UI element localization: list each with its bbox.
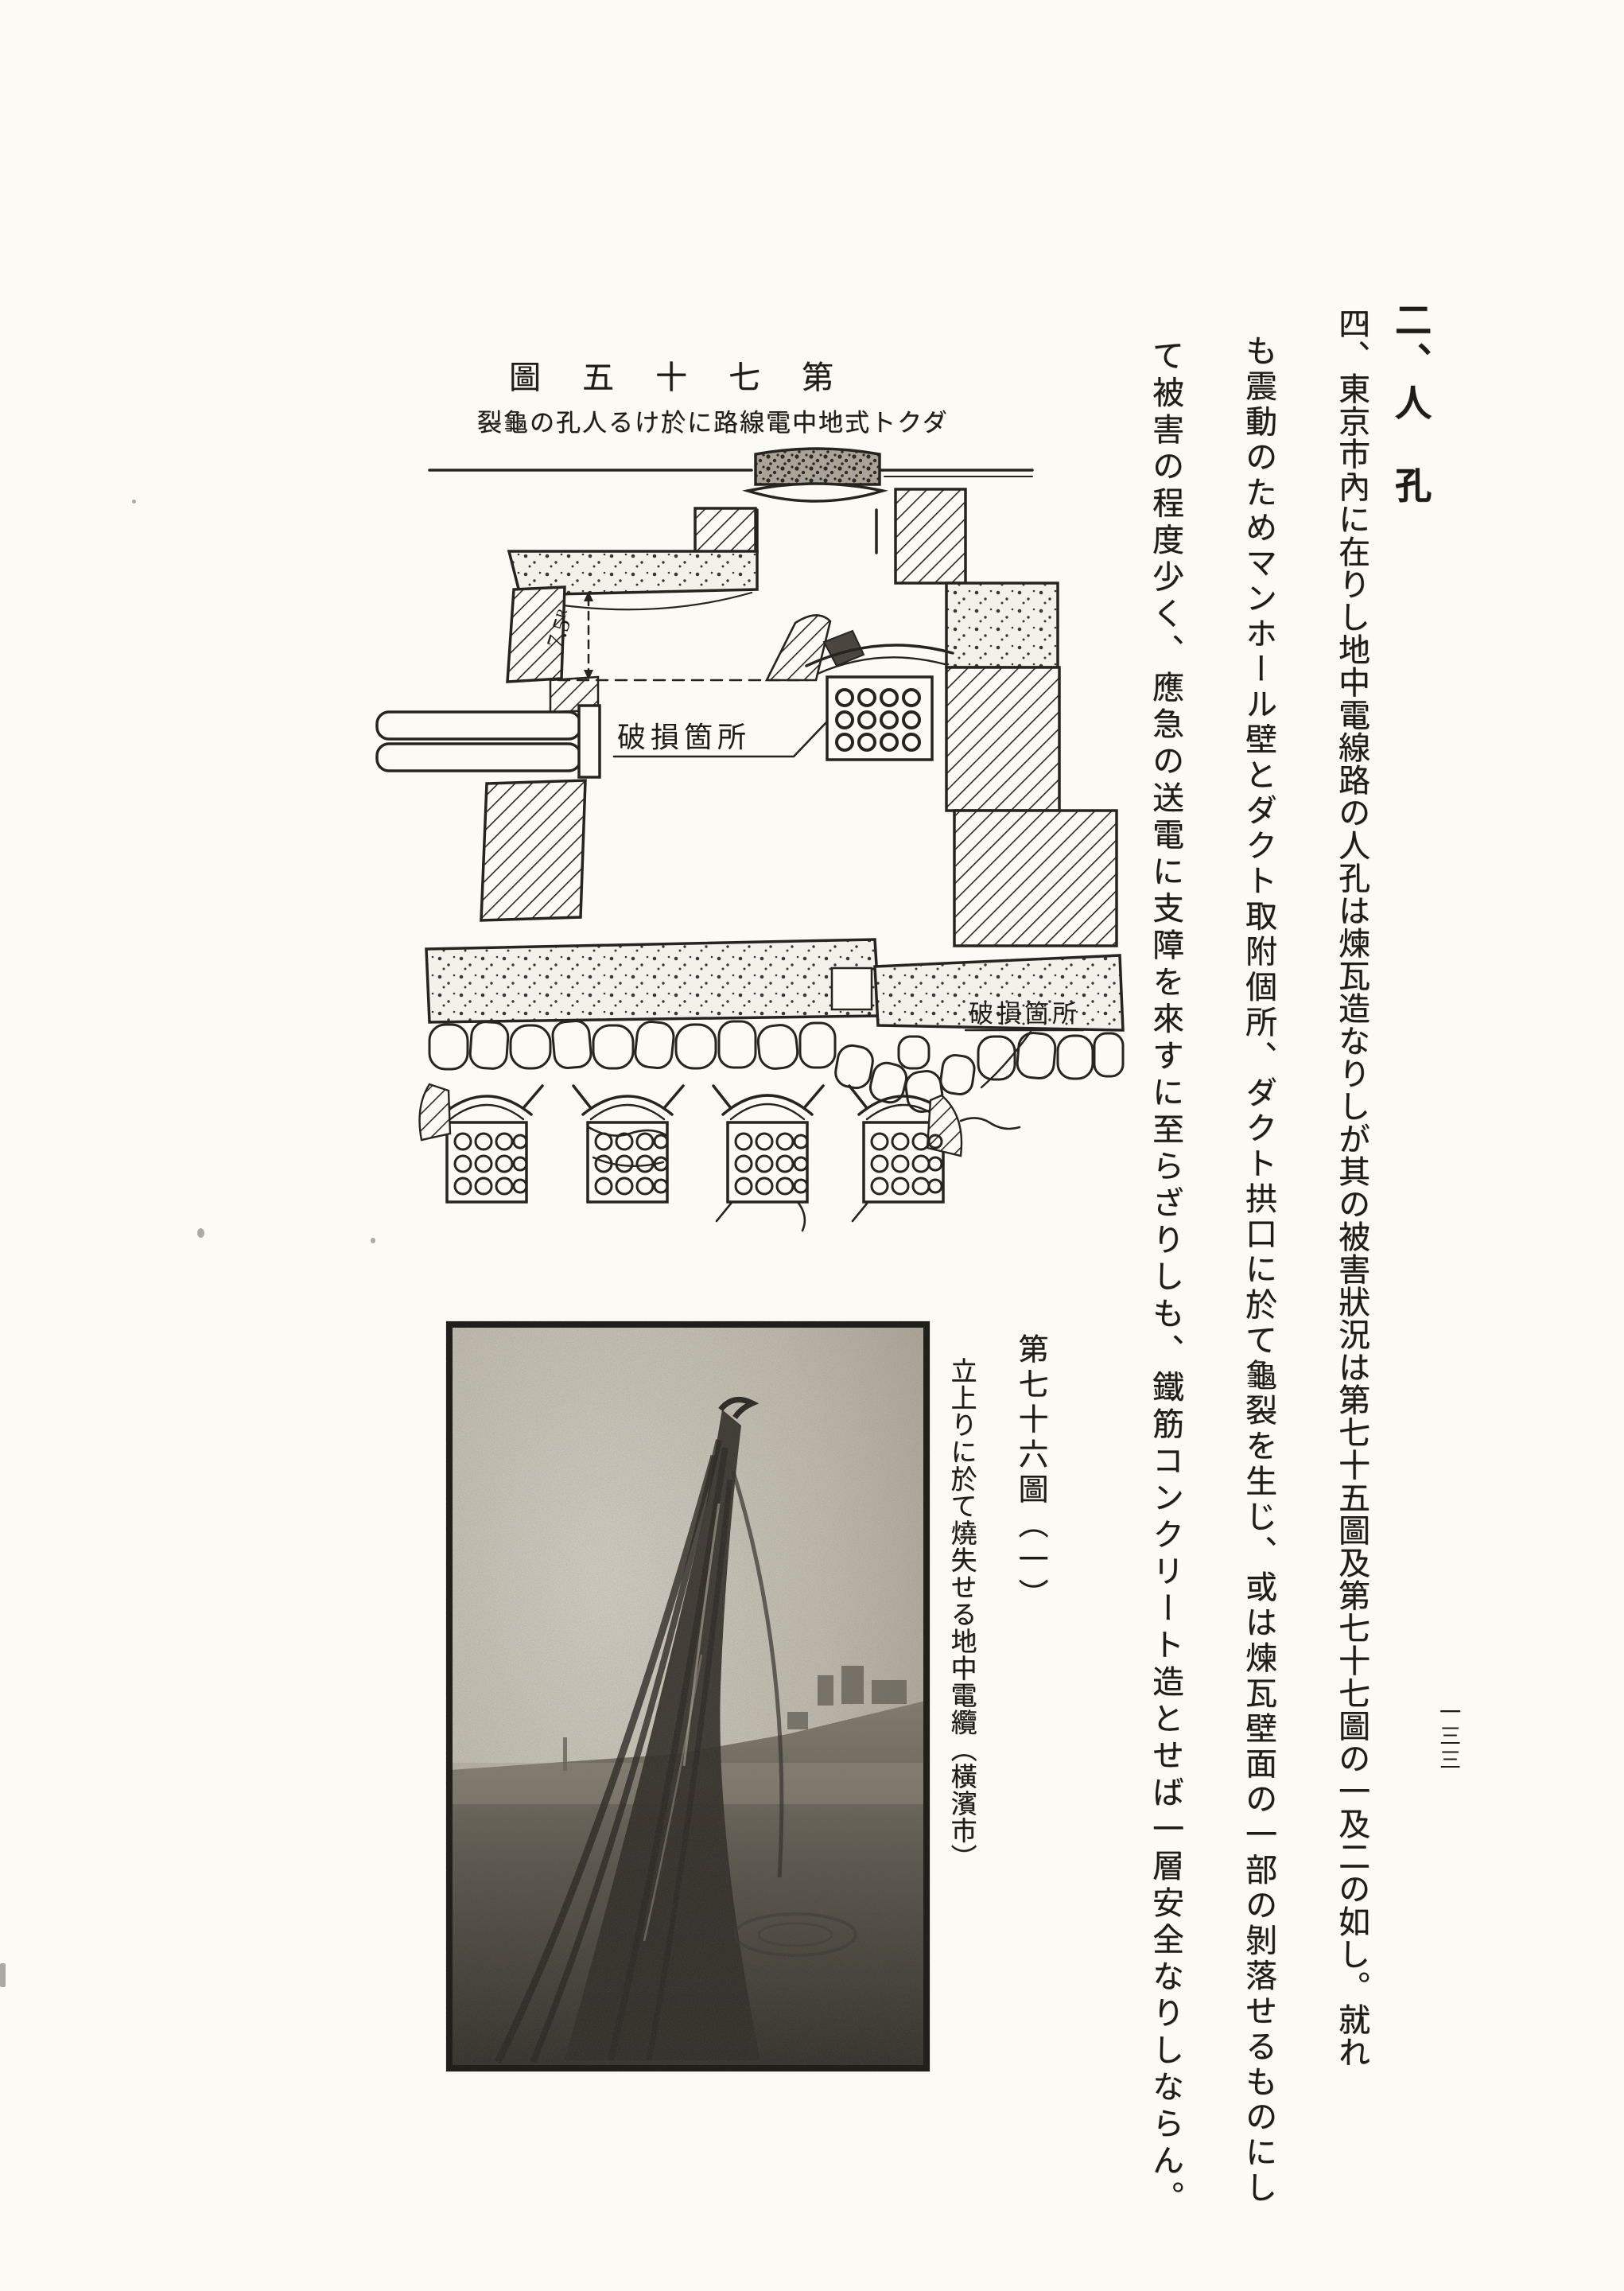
dimension-line	[558, 591, 807, 680]
figure75-title: 圖五十七第	[509, 352, 875, 398]
scan-speck	[197, 1228, 204, 1238]
scan-speck	[132, 500, 136, 504]
right-wall	[946, 583, 1117, 946]
body-column-1: 四、東京市內に在りし地中電線路の人孔は煉瓦造なりしが其の被害狀況は第七十五圖及第…	[1328, 307, 1374, 2068]
damage-label-lower: 破損箇所	[969, 1000, 1080, 1028]
scanned-page: 二、人 孔 四、東京市內に在りし地中電線路の人孔は煉瓦造なりしが其の被害狀況は第…	[0, 0, 1624, 2291]
rubble-foundation	[429, 1020, 1123, 1114]
ground-line	[429, 470, 1032, 476]
figure76-title: 第七十六圖（一）	[1008, 1333, 1052, 1613]
figure76-caption: 立上りに於て燒失せる地中電纜（橫濱市）	[942, 1357, 980, 1871]
photo-grain	[450, 1325, 926, 2067]
left-wall-lower	[481, 780, 585, 920]
duct-view-1	[420, 1084, 542, 1202]
duct-view-2	[573, 1086, 683, 1202]
duct-view-4	[849, 1086, 1020, 1221]
scan-speck	[371, 1238, 375, 1243]
page-number: 一三三	[1433, 1701, 1464, 1772]
duct-bank	[767, 615, 953, 760]
damage-label-upper-group: 破損箇所	[614, 722, 827, 757]
cable-entry-pipes	[377, 677, 600, 777]
body-column-2: も震動のためマンホール壁とダクト取附個所、ダクト拱口に於て龜裂を生じ、或は煉瓦壁…	[1235, 334, 1281, 2206]
scan-speck	[0, 1963, 6, 1987]
figure75-caption: 裂龜の孔人るけ於に路線電中地式トクダ	[477, 403, 949, 438]
manhole-diagram: 破損箇所 破損箇所 7.5ᴿ	[350, 441, 1129, 1253]
section-header: 二、人 孔	[1384, 301, 1436, 508]
manhole-cover	[748, 449, 883, 501]
duct-view-3	[713, 1086, 823, 1231]
damage-label-upper: 破損箇所	[617, 722, 751, 753]
burned-cable-photo	[445, 1321, 930, 2072]
body-column-3: て被害の程度少く、應急の送電に支障を來すに至らざりしも、鐵筋コンクリート造とせば…	[1142, 339, 1188, 2217]
